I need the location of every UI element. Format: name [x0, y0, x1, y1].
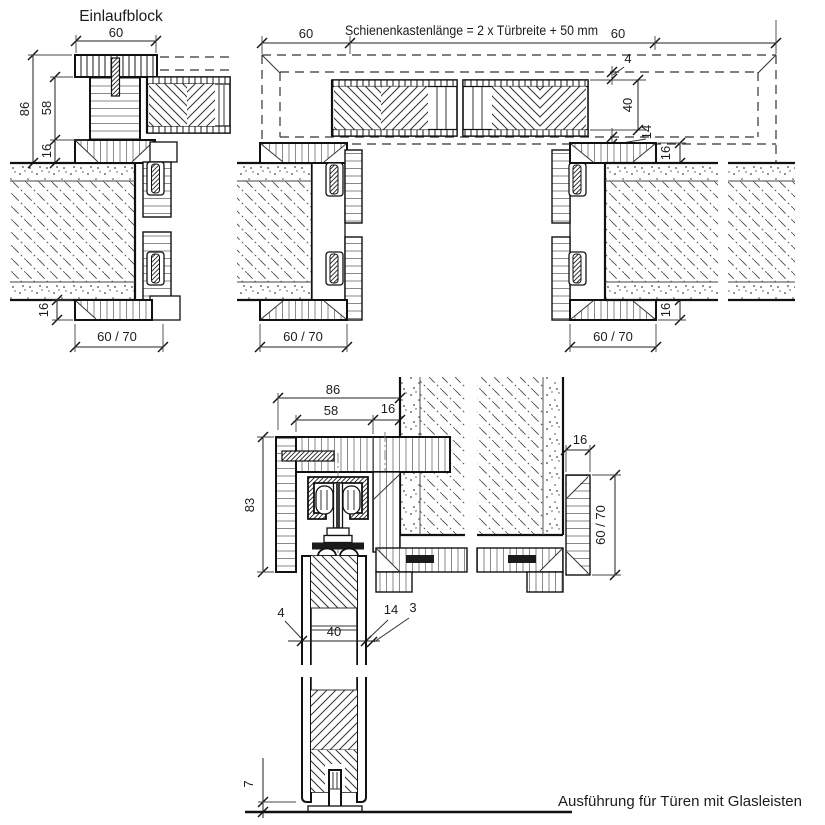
dim-label-60-70-left: 60 / 70	[97, 329, 137, 344]
dim-label-einlauf-60: 60	[109, 25, 123, 40]
dim-label-86: 86	[17, 102, 32, 116]
roller-left	[316, 486, 333, 514]
dim-label-sec-40: 40	[327, 624, 341, 639]
einlaufblock-title: Einlaufblock	[79, 8, 163, 25]
technical-drawing-page: 60 Schienenkastenlänge = 2 x Türbreite +…	[0, 0, 825, 825]
dim-label-sec-16-lining: 16	[381, 401, 395, 416]
dim-label-sec-3: 3	[409, 600, 416, 615]
floor-guide-plate	[308, 806, 362, 812]
dim-label-60-70-right: 60 / 70	[593, 329, 633, 344]
screw-icon	[282, 451, 334, 461]
dim-label-58: 58	[39, 101, 54, 115]
break-line	[298, 665, 370, 677]
caption: Ausführung für Türen mit Glasleisten	[558, 793, 802, 810]
plan-left-wall	[10, 163, 135, 300]
dim-label-sec-16-frame: 16	[573, 432, 587, 447]
dim-label-sec-60-70: 60 / 70	[593, 505, 608, 545]
einlaufblock-detail: Einlaufblock 60 86 58 16	[17, 8, 163, 168]
glazing-bead-right	[357, 556, 366, 802]
plan-right-wall	[605, 163, 795, 300]
dim-label-sec-83: 83	[242, 498, 257, 512]
plan-top-dimension-chain: 60 Schienenkastenlänge = 2 x Türbreite +…	[257, 20, 781, 54]
dim-label-sec-7: 7	[241, 780, 256, 787]
dim-label-sec-14: 14	[384, 602, 398, 617]
dim-label-60-left: 60	[299, 26, 313, 41]
plan-door-panels	[332, 80, 588, 136]
dim-label-4: 4	[624, 51, 631, 66]
plan-left-door-panel	[147, 77, 230, 133]
sliding-door-technical-drawing: 60 Schienenkastenlänge = 2 x Türbreite +…	[0, 0, 825, 825]
dim-label-16-frame-bottom: 16	[658, 303, 673, 317]
dim-label-60-70-mid: 60 / 70	[283, 329, 323, 344]
plan-middle-wall	[237, 163, 312, 300]
dim-label-sec-4: 4	[277, 605, 284, 620]
rail-box-formula-label: Schienenkastenlänge = 2 x Türbreite + 50…	[345, 23, 598, 38]
dim-label-sec-86: 86	[326, 382, 340, 397]
glazing-bead-left	[302, 556, 311, 802]
dim-label-16-wall-bottom: 16	[36, 303, 51, 317]
dim-label-40: 40	[620, 98, 635, 112]
dim-label-sec-58: 58	[324, 403, 338, 418]
dim-label-14: 14	[639, 125, 654, 139]
mounting-plate	[312, 543, 364, 550]
dim-label-16-frame-top: 16	[658, 146, 673, 160]
door-leaf-section	[298, 556, 370, 812]
screw-icon	[112, 58, 120, 96]
roller-right	[343, 486, 360, 514]
dim-label-16-block: 16	[39, 144, 54, 158]
dim-label-60-right: 60	[611, 26, 625, 41]
